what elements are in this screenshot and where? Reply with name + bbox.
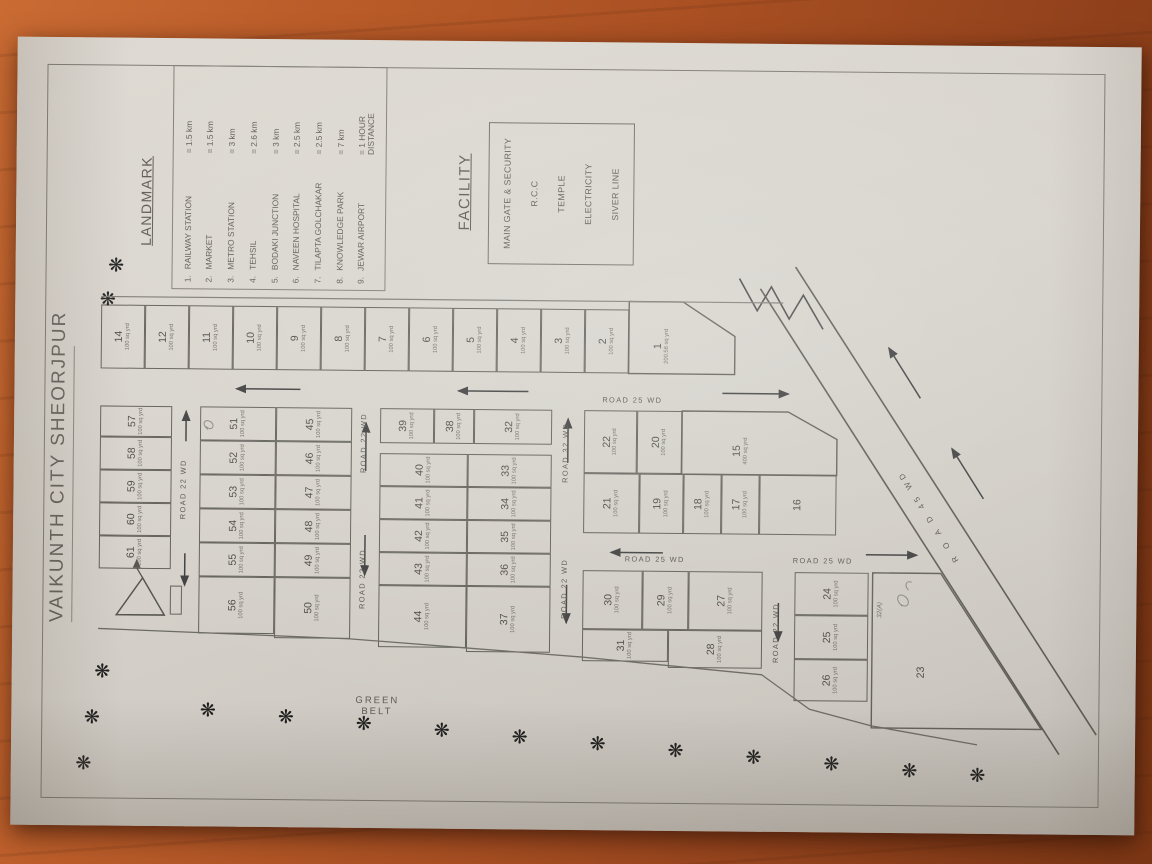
- plot-8: 8100 sq yrd: [321, 307, 366, 371]
- landmark-box: 1.RAILWAY STATION= 1.5 km 2.MARKET= 1.5 …: [171, 65, 387, 291]
- plot-44: 44100 sq yrd: [378, 585, 467, 648]
- green-belt-label: GREEN BELT: [329, 695, 425, 718]
- site-plan: VAIKUNTH CITY SHEORJPUR LANDMARK 1.RAILW…: [18, 40, 1129, 831]
- tree-icon: ❋: [276, 708, 299, 724]
- plot-39: 39100 sq yrd: [380, 408, 434, 444]
- plan-title: VAIKUNTH CITY SHEORJPUR: [46, 346, 75, 622]
- plot-7: 7100 sq yrd: [365, 307, 410, 371]
- plot-1-label: 1200.58 sq yrd: [653, 329, 671, 364]
- plot-30: 30100 sq yrd: [582, 570, 643, 630]
- tree-icon: ❋: [198, 701, 221, 717]
- plot-33: 33100 sq yrd: [468, 454, 552, 488]
- plot-19: 19100 sq yrd: [639, 474, 684, 534]
- tree-icon: ❋: [821, 755, 844, 771]
- plot-10: 10100 sq yrd: [233, 306, 278, 370]
- plot-11: 11100 sq yrd: [189, 305, 234, 369]
- plot-35: 35100 sq yrd: [467, 520, 551, 554]
- tree-icon: ❋: [82, 708, 105, 724]
- plot-37: 37100 sq yrd: [466, 586, 551, 653]
- landmark-item: 1.RAILWAY STATION= 1.5 km: [183, 72, 193, 282]
- plot-50: 50100 sq yrd: [274, 577, 351, 639]
- plot-31: 31100 sq yrd: [582, 629, 668, 662]
- plot-45: 45100 sq yrd: [276, 407, 352, 442]
- plot-36: 36100 sq yrd: [467, 553, 551, 587]
- tree-icon: ❋: [354, 715, 377, 731]
- landmark-item: 3.METRO STATION= 3 km: [227, 73, 237, 283]
- plan-rotation-wrapper: VAIKUNTH CITY SHEORJPUR LANDMARK 1.RAILW…: [18, 40, 1129, 831]
- road-25-label: ROAD 25 WD: [578, 395, 686, 405]
- plot-4: 4100 sq yrd: [497, 308, 542, 372]
- plot-23-label: 23: [916, 667, 927, 679]
- plot-15-label: 15400 sq yrd: [732, 437, 750, 464]
- plot-17: 17100 sq yrd: [721, 474, 760, 534]
- plot-53: 53100 sq yrd: [199, 474, 275, 509]
- plot-48: 48100 sq yrd: [275, 509, 351, 544]
- plot-54: 54100 sq yrd: [199, 508, 275, 543]
- tree-icon: ❋: [510, 728, 533, 744]
- plot-5: 5100 sq yrd: [453, 308, 498, 372]
- plot-43: 43100 sq yrd: [379, 552, 467, 586]
- road-22-label: ROAD 22 WD: [559, 551, 569, 627]
- plot-25: 25100 sq yrd: [794, 615, 868, 660]
- plot-26: 26100 sq yrd: [793, 659, 867, 702]
- landmark-item: 5.BODAKI JUNCTION= 3 km: [270, 73, 280, 283]
- road-22-label: ROAD 22 WD: [359, 405, 369, 481]
- plot-24: 24100 sq yrd: [794, 572, 868, 616]
- plot-41: 41100 sq yrd: [379, 486, 467, 520]
- plot-58: 58100 sq yrd: [100, 436, 172, 470]
- plot-51: 51100 sq yrd: [200, 406, 276, 441]
- plot-12: 12100 sq yrd: [145, 305, 190, 369]
- road-25-label: ROAD 25 WD: [603, 554, 707, 564]
- plot-61: 61100 sq yrd: [99, 535, 171, 569]
- road-25-label: ROAD 25 WD: [771, 556, 875, 566]
- plot-27: 27100 sq yrd: [688, 571, 763, 631]
- plot-2: 2100 sq yrd: [585, 309, 630, 373]
- facility-item: MAIN GATE & SECURITY: [501, 138, 512, 249]
- paper-sheet: VAIKUNTH CITY SHEORJPUR LANDMARK 1.RAILW…: [10, 37, 1142, 836]
- landmark-item: 6.NAVEEN HOSPITAL= 2.5 km: [292, 73, 302, 283]
- facility-box: MAIN GATE & SECURITY R.C.C TEMPLE ELECTR…: [488, 122, 635, 265]
- plot-57: 57100 sq yrd: [100, 405, 172, 437]
- road-22-label: ROAD 22 WD: [357, 541, 367, 617]
- tree-icon: ❋: [743, 749, 766, 765]
- plot-21: 21100 sq yrd: [583, 473, 640, 534]
- tree-icon: ❋: [967, 767, 990, 783]
- road-22-label: ROAD 22 WD: [178, 449, 188, 529]
- plot-52: 52100 sq yrd: [200, 440, 276, 475]
- landmark-item: 7.TILAPTA GOLCHAKAR= 2.5 km: [313, 73, 323, 283]
- plot-47: 47100 sq yrd: [275, 475, 351, 510]
- tree-icon: ❋: [587, 735, 610, 751]
- plot-40: 40100 sq yrd: [380, 453, 468, 487]
- tree-icon: ❋: [432, 722, 455, 738]
- plot-20: 20100 sq yrd: [637, 411, 683, 474]
- road-22-label: ROAD 22 WD: [771, 595, 781, 671]
- plot-56: 56100 sq yrd: [198, 576, 275, 634]
- tree-icon: ❋: [98, 290, 121, 306]
- road-32-label: ROAD 32 WD: [560, 415, 570, 491]
- plot-55: 55100 sq yrd: [199, 542, 275, 577]
- facility-item: ELECTRICITY: [583, 163, 594, 225]
- plot-14: 14100 sq yrd: [101, 304, 146, 368]
- landmark-item: 9.JEWAR AIRPORT= 1 HOUR DISTANCE: [357, 74, 376, 284]
- facility-item: SIVER LINE: [610, 168, 621, 220]
- plot-18: 18100 sq yrd: [683, 474, 722, 534]
- landmark-item: 4.TEHSIL= 2.6 km: [248, 73, 258, 283]
- facility-header: FACILITY: [456, 122, 474, 262]
- plot-38: 38100 sq yrd: [434, 409, 474, 444]
- plot-22: 22100 sq yrd: [584, 410, 638, 474]
- tree-icon: ❋: [92, 662, 115, 678]
- plot-60: 60100 sq yrd: [99, 502, 171, 536]
- plot-32: 32100 sq yrd: [474, 409, 552, 445]
- plot-42: 42100 sq yrd: [379, 519, 467, 553]
- facility-item: TEMPLE: [556, 175, 566, 213]
- tree-icon: ❋: [73, 754, 96, 770]
- facility-item: R.C.C: [529, 181, 539, 207]
- landmark-item: 8.KNOWLEDGE PARK= 7 km: [335, 74, 345, 284]
- plot-23-sub-label: 32(A): [876, 602, 883, 618]
- plot-59: 59100 sq yrd: [99, 469, 171, 503]
- landmark-header: LANDMARK: [137, 121, 155, 281]
- plot-49: 49100 sq yrd: [275, 543, 351, 578]
- plot-16: 16: [759, 475, 837, 536]
- plot-9: 9100 sq yrd: [277, 306, 322, 370]
- plot-29: 29100 sq yrd: [642, 571, 689, 630]
- plot-46: 46100 sq yrd: [276, 441, 352, 476]
- tree-icon: ❋: [899, 762, 922, 778]
- plot-28: 28100 sq yrd: [668, 630, 762, 669]
- plot-3: 3100 sq yrd: [541, 309, 586, 373]
- tree-icon: ❋: [665, 742, 688, 758]
- plot-6: 6100 sq yrd: [409, 307, 454, 371]
- landmark-item: 2.MARKET= 1.5 km: [205, 72, 215, 282]
- plot-34: 34100 sq yrd: [467, 487, 551, 521]
- tree-icon: ❋: [106, 257, 129, 273]
